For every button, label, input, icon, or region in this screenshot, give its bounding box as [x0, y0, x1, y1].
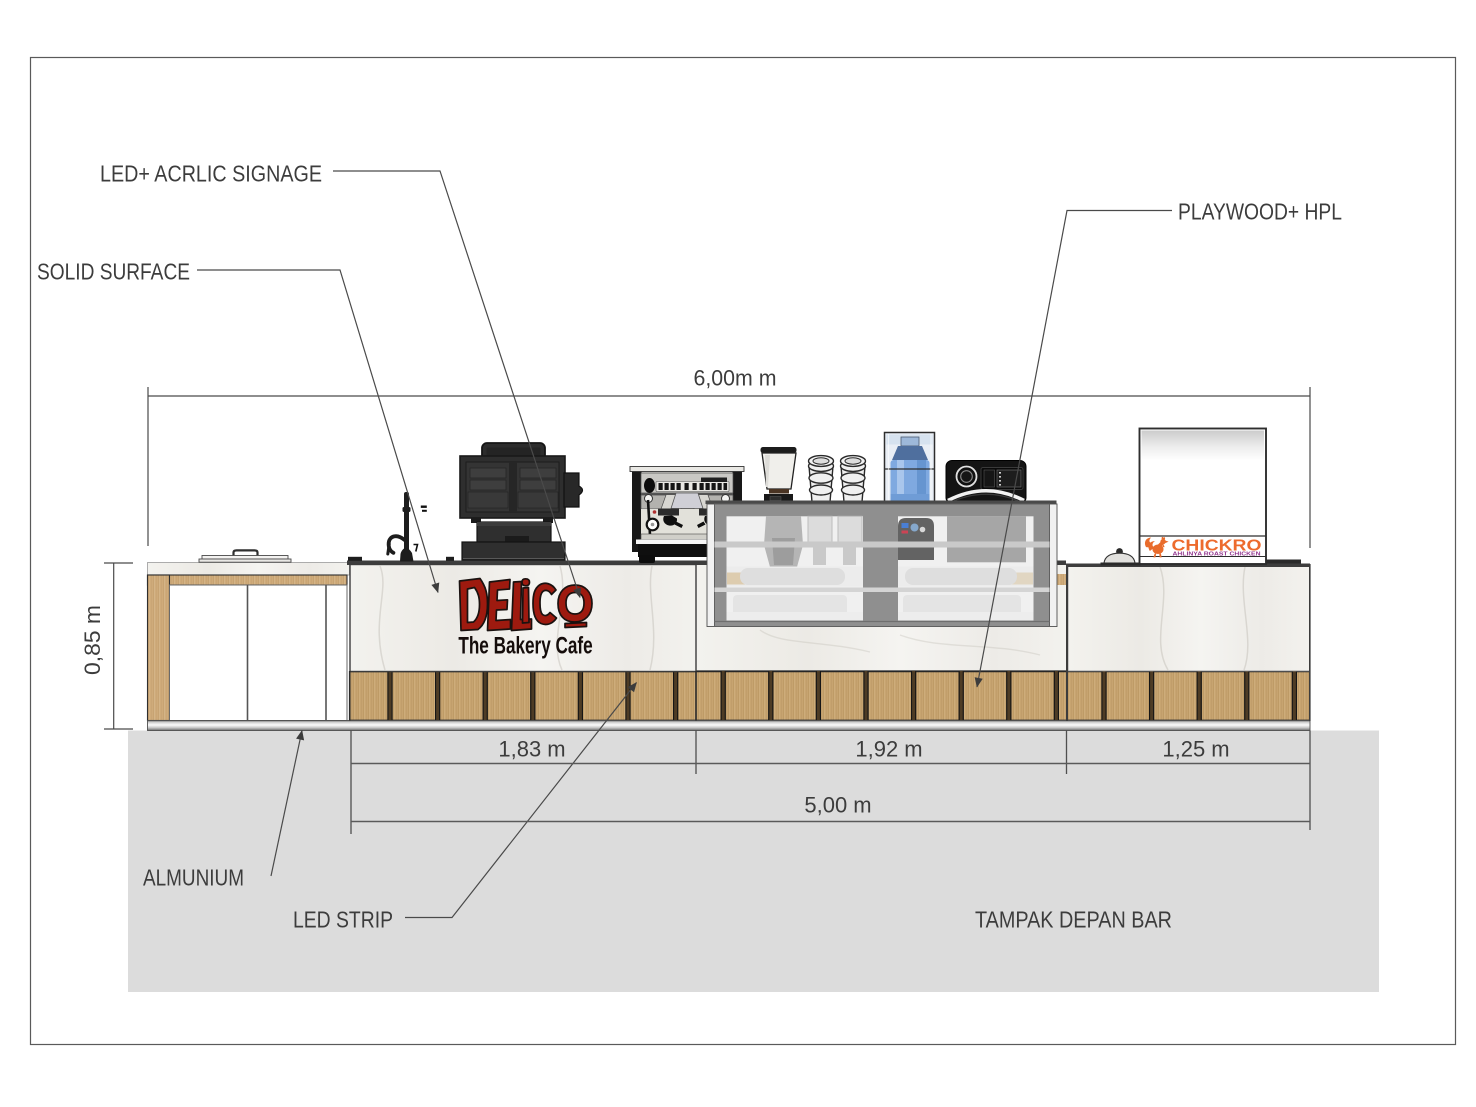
svg-text:LED+ ACRLIC SIGNAGE: LED+ ACRLIC SIGNAGE	[100, 161, 322, 187]
svg-text:1,25 m: 1,25 m	[1162, 737, 1229, 762]
svg-text:1,83 m: 1,83 m	[498, 737, 565, 762]
svg-text:ALMUNIUM: ALMUNIUM	[143, 865, 244, 891]
svg-text:1,92 m: 1,92 m	[855, 737, 922, 762]
svg-text:The Bakery Cafe: The Bakery Cafe	[458, 633, 592, 660]
svg-text:PLAYWOOD+ HPL: PLAYWOOD+ HPL	[1178, 199, 1342, 225]
svg-text:SOLID SURFACE: SOLID SURFACE	[37, 259, 190, 285]
svg-text:0,85 m: 0,85 m	[80, 605, 105, 675]
svg-text:6,00m m: 6,00m m	[694, 366, 777, 391]
svg-text:TAMPAK DEPAN BAR: TAMPAK DEPAN BAR	[975, 907, 1172, 933]
svg-text:5,00 m: 5,00 m	[804, 793, 871, 818]
svg-text:AHLINYA ROAST CHICKEN: AHLINYA ROAST CHICKEN	[1173, 551, 1261, 557]
svg-text:LED STRIP: LED STRIP	[293, 907, 393, 933]
